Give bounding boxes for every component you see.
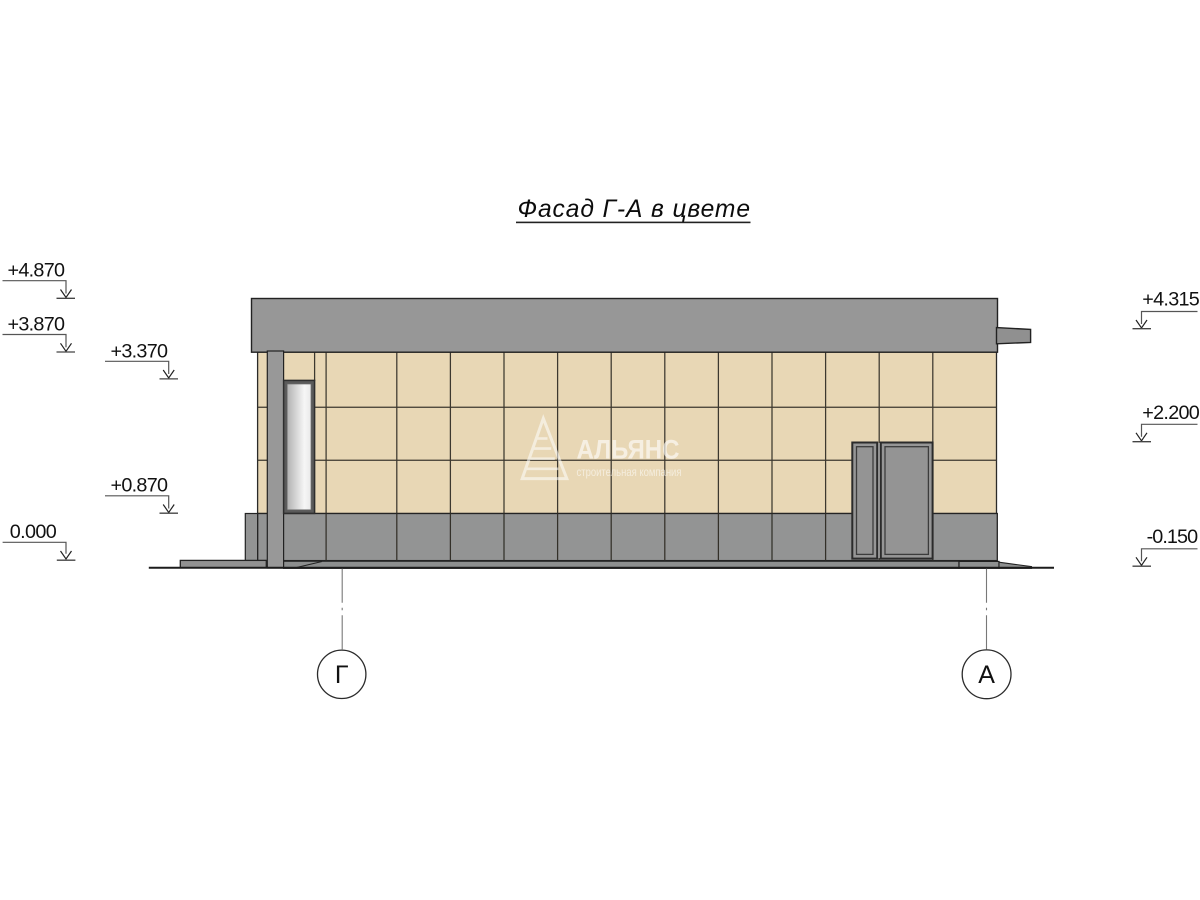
svg-text:+4.315: +4.315 [1142,289,1200,311]
svg-text:строительная компания: строительная компания [577,465,682,479]
svg-text:-0.150: -0.150 [1147,526,1199,548]
svg-text:Фасад Г-А в цвете: Фасад Г-А в цвете [518,196,751,223]
svg-text:АЛЬЯНС: АЛЬЯНС [577,435,680,465]
svg-text:+4.870: +4.870 [8,259,66,281]
svg-text:Г: Г [335,661,349,689]
svg-text:+0.870: +0.870 [111,474,169,496]
svg-text:+3.870: +3.870 [8,313,66,335]
svg-text:0.000: 0.000 [10,521,57,543]
svg-text:+2.200: +2.200 [1142,402,1200,424]
svg-text:А: А [978,661,995,689]
svg-text:+3.370: +3.370 [111,340,169,362]
